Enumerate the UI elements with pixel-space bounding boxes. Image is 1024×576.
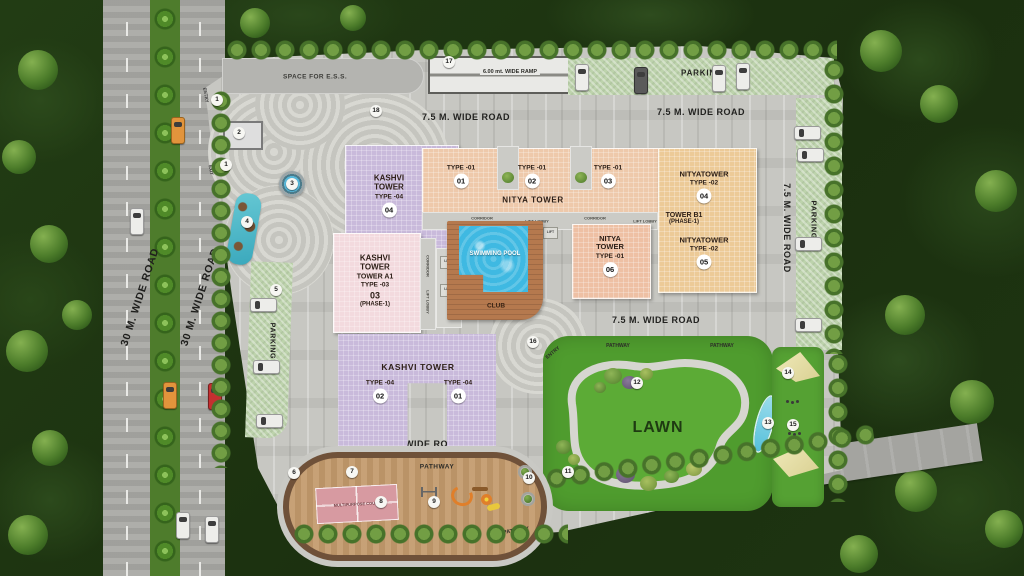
- tower-type: TYPE -01: [447, 165, 475, 172]
- multipurpose-court: MULTIPURPOSE COURT: [315, 484, 399, 524]
- kashvi-bottom-wing-02: TYPE -04 02: [366, 379, 394, 404]
- outdoor-gym-icon: [421, 487, 437, 497]
- tower-name: KASHVI TOWER: [349, 255, 401, 273]
- stair-core: [570, 146, 592, 190]
- club-label: CLUB: [487, 303, 505, 310]
- tree-icon: [885, 295, 925, 335]
- nitya-06-label: NITYA TOWER TYPE -01 06: [590, 235, 630, 277]
- tree-icon: [860, 30, 902, 72]
- tree-icon: [985, 510, 1023, 548]
- median-palm-row: [152, 0, 178, 576]
- corridor-core: [420, 238, 436, 330]
- tree-icon: [32, 430, 68, 466]
- shrub-icon: [594, 382, 606, 393]
- unit-number: 05: [696, 255, 711, 270]
- kashvi-a1-label: KASHVI TOWER TOWER A1 TYPE -03 03 (PHASE…: [349, 255, 401, 308]
- tree-icon: [920, 85, 958, 123]
- tree-icon: [8, 515, 48, 555]
- tower-type: TYPE -01: [596, 253, 624, 260]
- pool-label: SWIMMING POOL: [470, 251, 521, 257]
- seven-five-road-label: 7.5 M. WIDE ROAD: [422, 112, 510, 122]
- fountain: [279, 171, 305, 197]
- tree-icon: [895, 470, 937, 512]
- court-label: MULTIPURPOSE COURT: [333, 500, 380, 507]
- tree-row: [822, 58, 848, 354]
- lift-lobby-label: LIFT LOBBY: [426, 290, 431, 314]
- parking-label-right: PARKING: [810, 201, 819, 240]
- kashvi-top-label: KASHVI TOWER TYPE -04 04: [363, 175, 415, 218]
- lawn-label: LAWN: [632, 419, 683, 437]
- planter-icon: [518, 465, 532, 479]
- pathway-label: PATHWAY: [710, 343, 734, 349]
- tower-type: TYPE -02: [690, 246, 718, 253]
- shrub-icon: [640, 368, 653, 380]
- corridor-label: CORRIDOR: [584, 216, 606, 221]
- tower-type: TYPE -04: [444, 380, 472, 387]
- unit-number: 04: [382, 202, 397, 217]
- tree-icon: [2, 140, 36, 174]
- tree-icon: [62, 300, 92, 330]
- tower-name: NITYATOWER: [679, 236, 728, 245]
- car-icon: [171, 117, 185, 144]
- pathway-label: PATHWAY: [606, 343, 630, 349]
- road-dash-line: [126, 0, 128, 576]
- tree-icon: [18, 50, 58, 90]
- tree-row: [225, 38, 837, 62]
- pathway-label: PATHWAY: [420, 464, 454, 471]
- unit-number: 02: [373, 389, 388, 404]
- shrub-icon: [604, 368, 622, 384]
- car-icon: [205, 516, 219, 543]
- unit-number: 03: [601, 174, 616, 189]
- shrub-icon: [575, 172, 587, 183]
- tree-icon: [6, 330, 48, 372]
- car-icon: [795, 237, 822, 251]
- lift-lobby-label: LIFT LOBBY: [633, 219, 657, 224]
- unit-number: 03: [370, 290, 380, 300]
- tree-icon: [240, 8, 270, 38]
- tower-type: TYPE -04: [366, 380, 394, 387]
- tree-row: [211, 90, 231, 468]
- nityatower-05-label: NITYATOWER TYPE -02 05: [679, 235, 728, 270]
- tower-name: NITYATOWER: [679, 170, 728, 179]
- kashvi-bottom-wing-01: TYPE -04 01: [444, 379, 472, 404]
- tower-b1-name: TOWER B1: [666, 212, 703, 219]
- tower-type: TYPE -04: [375, 193, 403, 200]
- shrub-icon: [556, 440, 571, 454]
- parking-label-left: PARKING: [269, 323, 276, 360]
- tower-b1-phase: (PHASE-1): [669, 219, 699, 225]
- nitya-wing-2: TYPE -01 02: [518, 164, 546, 189]
- nitya-name: NITYA TOWER: [502, 196, 563, 205]
- play-equipment-icon: [472, 487, 488, 491]
- car-icon: [130, 208, 144, 235]
- car-icon: [176, 512, 190, 539]
- car-icon: [575, 64, 589, 91]
- car-icon: [256, 414, 283, 428]
- lift-box: LIFT: [543, 227, 558, 239]
- seven-five-road-label: 7.5 M. WIDE ROAD: [657, 107, 745, 117]
- ess-label: SPACE FOR E.S.S.: [283, 74, 347, 81]
- unit-number: 01: [454, 174, 469, 189]
- nitya-wing-3: TYPE -01 03: [594, 164, 622, 189]
- tower-type: TYPE -01: [518, 165, 546, 172]
- ramp-label: 6.00 mt. WIDE RAMP: [480, 69, 540, 75]
- tree-icon: [340, 5, 366, 31]
- tower-phase: (PHASE-1): [360, 301, 390, 307]
- tower-name: KASHVI TOWER: [363, 175, 415, 193]
- tower-type: TYPE -03: [361, 281, 389, 288]
- tower-sub: TOWER A1: [357, 273, 394, 280]
- unit-number: 01: [451, 389, 466, 404]
- car-icon: [253, 360, 280, 374]
- tower-b1-label: TOWER B1 (PHASE-1): [666, 211, 703, 225]
- shrub-icon: [622, 376, 637, 389]
- car-icon: [797, 148, 824, 162]
- tower-type: TYPE -02: [690, 180, 718, 187]
- nitya-wing-1: TYPE -01 01: [447, 164, 475, 189]
- seven-five-road-label: 7.5 M. WIDE ROAD: [612, 315, 700, 325]
- seven-five-road-label-right: 7.5 M. WIDE ROAD: [782, 183, 792, 273]
- car-icon: [712, 65, 726, 92]
- corridor-label: CORRIDOR: [471, 216, 493, 221]
- outdoor-gym-icon: [786, 400, 789, 403]
- tree-icon: [30, 225, 68, 263]
- unit-number: 04: [696, 189, 711, 204]
- shrub-icon: [502, 172, 514, 183]
- tree-row: [292, 522, 568, 550]
- car-icon: [795, 318, 822, 332]
- unit-number: 02: [525, 174, 540, 189]
- car-icon: [736, 63, 750, 90]
- car-icon: [634, 67, 648, 94]
- car-icon: [163, 382, 177, 409]
- play-equipment-icon: [481, 494, 492, 505]
- tower-name: NITYA TOWER: [590, 235, 630, 252]
- unit-number: 06: [603, 262, 618, 277]
- corridor-label: CORRIDOR: [426, 255, 431, 277]
- tree-icon: [840, 535, 878, 573]
- car-icon: [794, 126, 821, 140]
- site-plan: 9M. WIDE ROAD 30 M. WIDE ROAD 30 M. WIDE…: [0, 0, 1024, 576]
- planter-icon: [521, 492, 535, 506]
- car-icon: [250, 298, 277, 312]
- stair-core: [497, 146, 519, 190]
- tree-icon: [950, 380, 994, 424]
- nityatower-04-label: NITYATOWER TYPE -02 04: [679, 169, 728, 204]
- tower-type: TYPE -01: [594, 165, 622, 172]
- kashvi-bottom-name: KASHVI TOWER: [381, 362, 454, 372]
- tree-icon: [975, 170, 1017, 212]
